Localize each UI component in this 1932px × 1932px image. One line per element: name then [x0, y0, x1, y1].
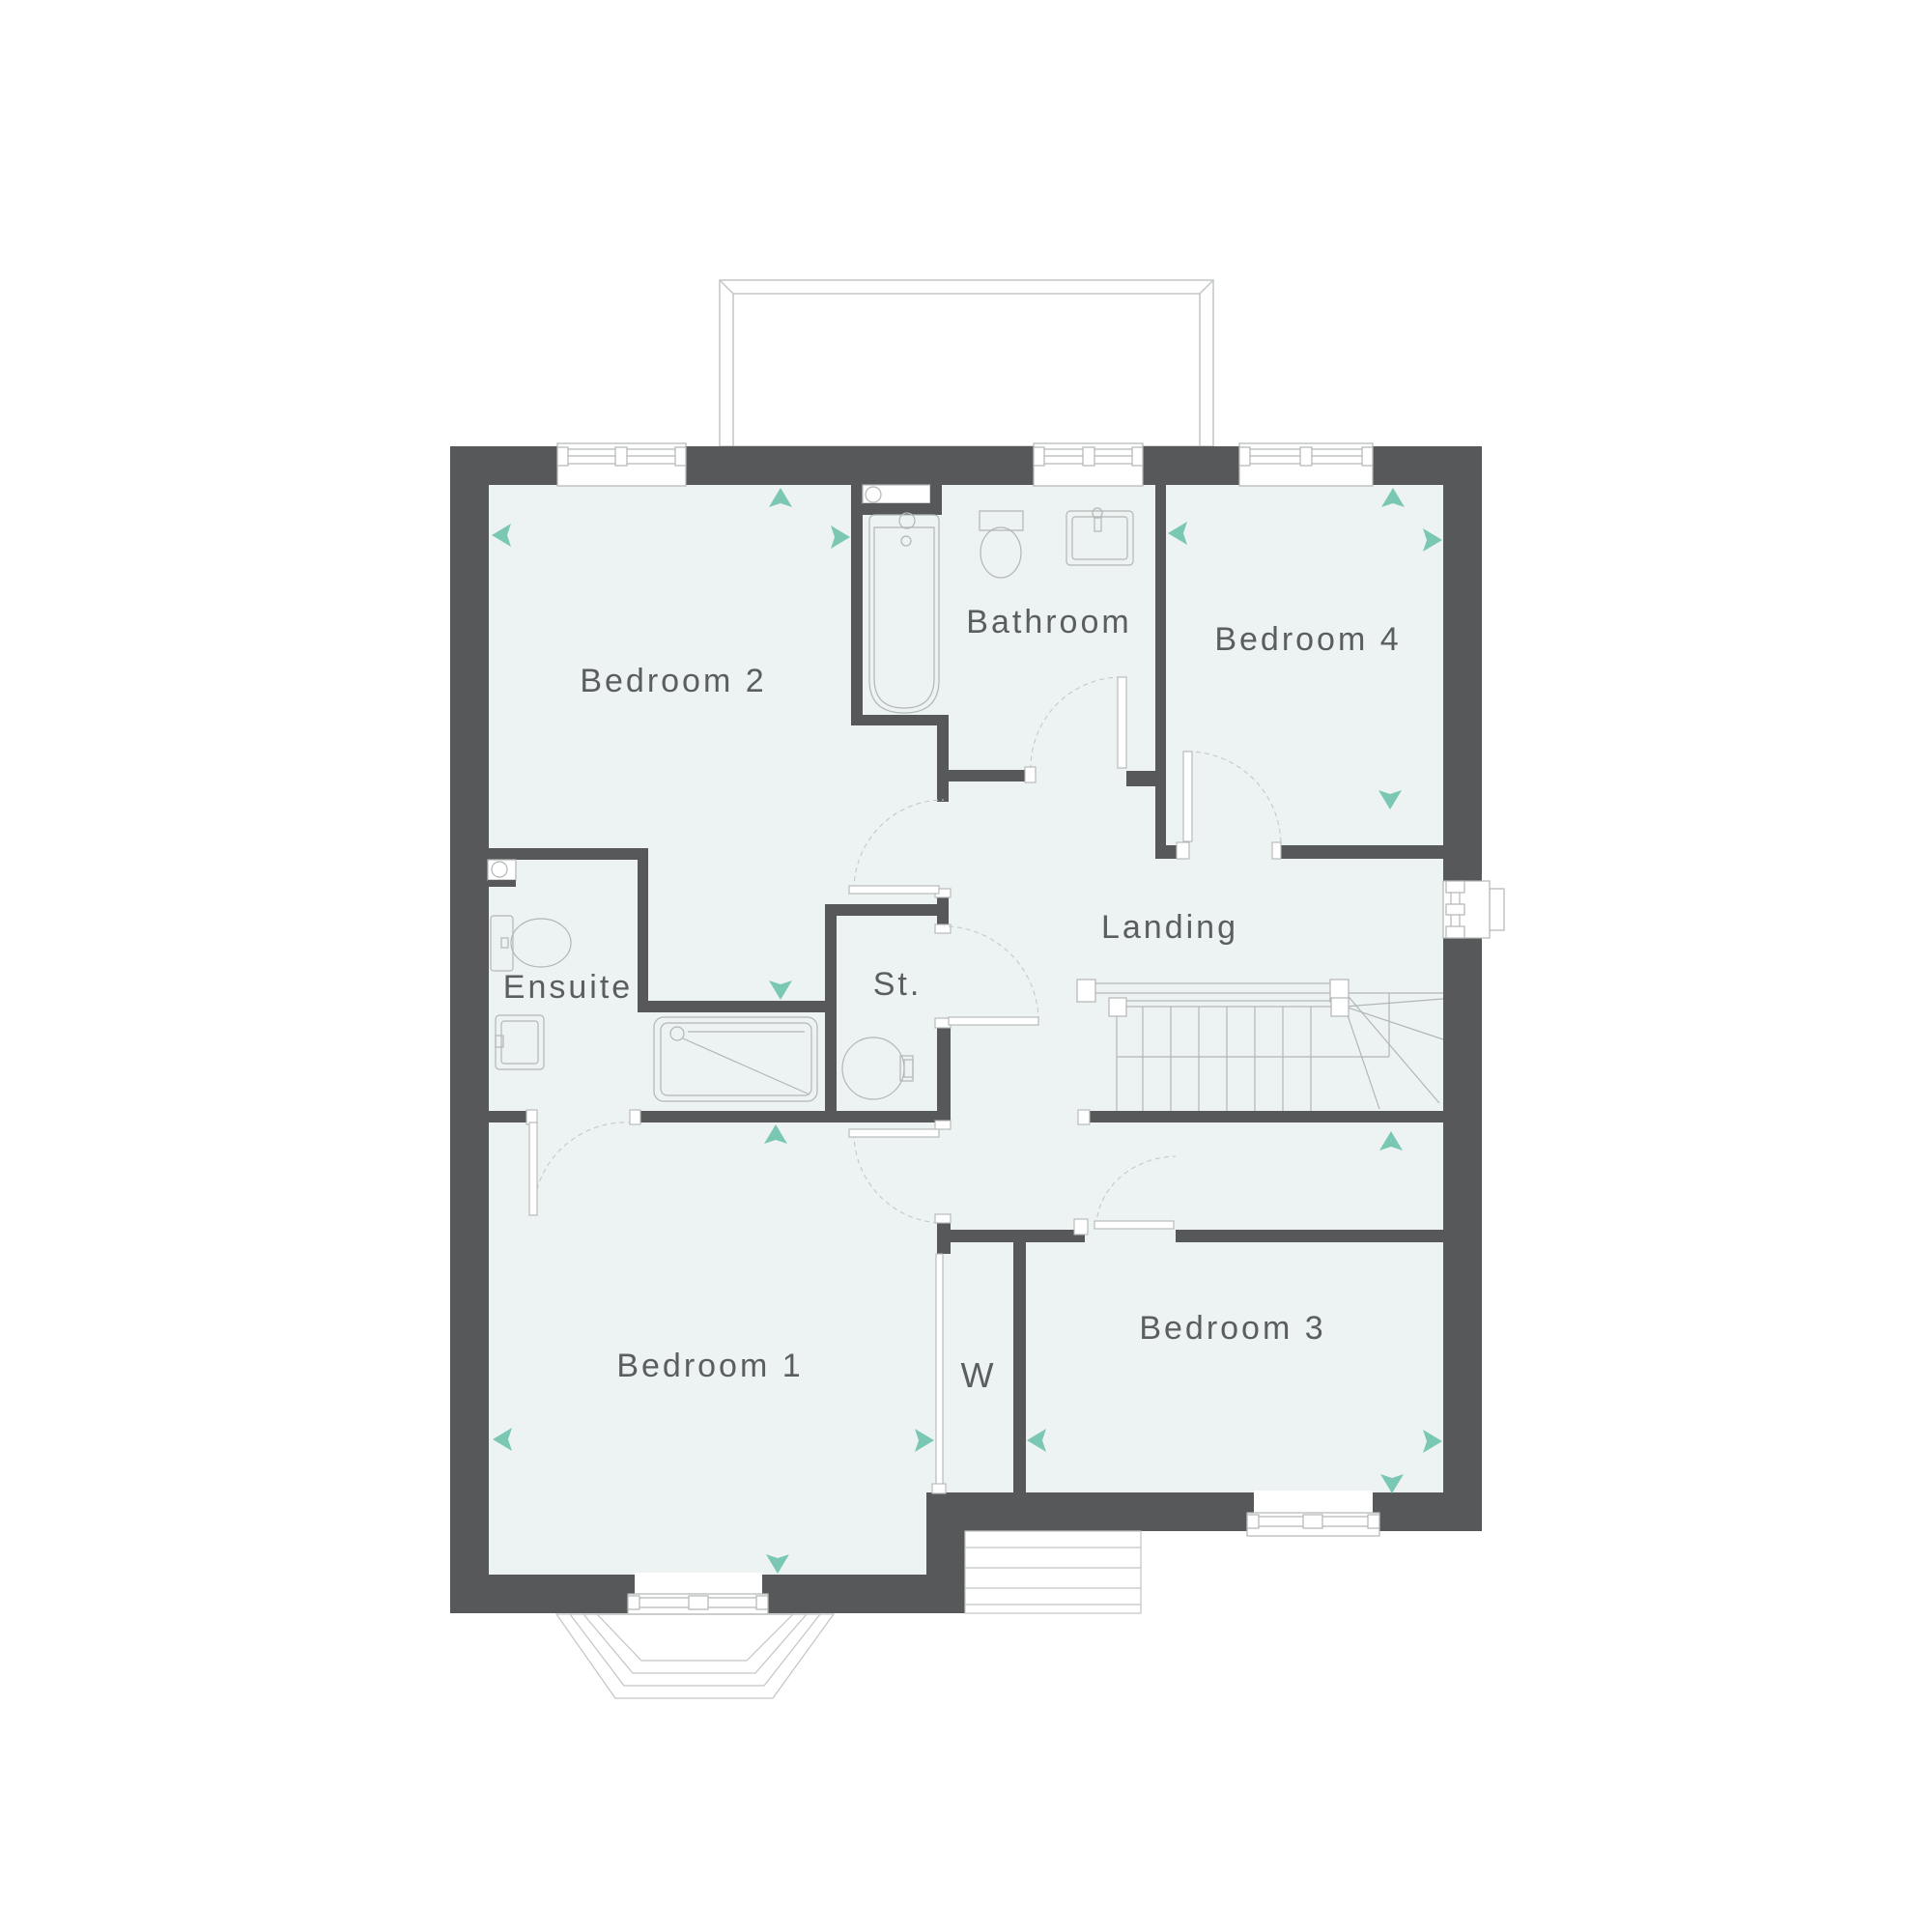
svg-text:St.: St.	[873, 966, 923, 1003]
svg-text:Bedroom 4: Bedroom 4	[1214, 621, 1401, 658]
svg-text:Landing: Landing	[1101, 909, 1238, 946]
svg-text:W: W	[961, 1355, 997, 1395]
svg-text:Ensuite: Ensuite	[503, 969, 633, 1006]
svg-text:Bedroom 2: Bedroom 2	[580, 663, 766, 699]
svg-text:Bathroom: Bathroom	[966, 604, 1131, 640]
svg-text:Bedroom 1: Bedroom 1	[616, 1348, 803, 1384]
svg-text:Bedroom 3: Bedroom 3	[1139, 1310, 1325, 1347]
